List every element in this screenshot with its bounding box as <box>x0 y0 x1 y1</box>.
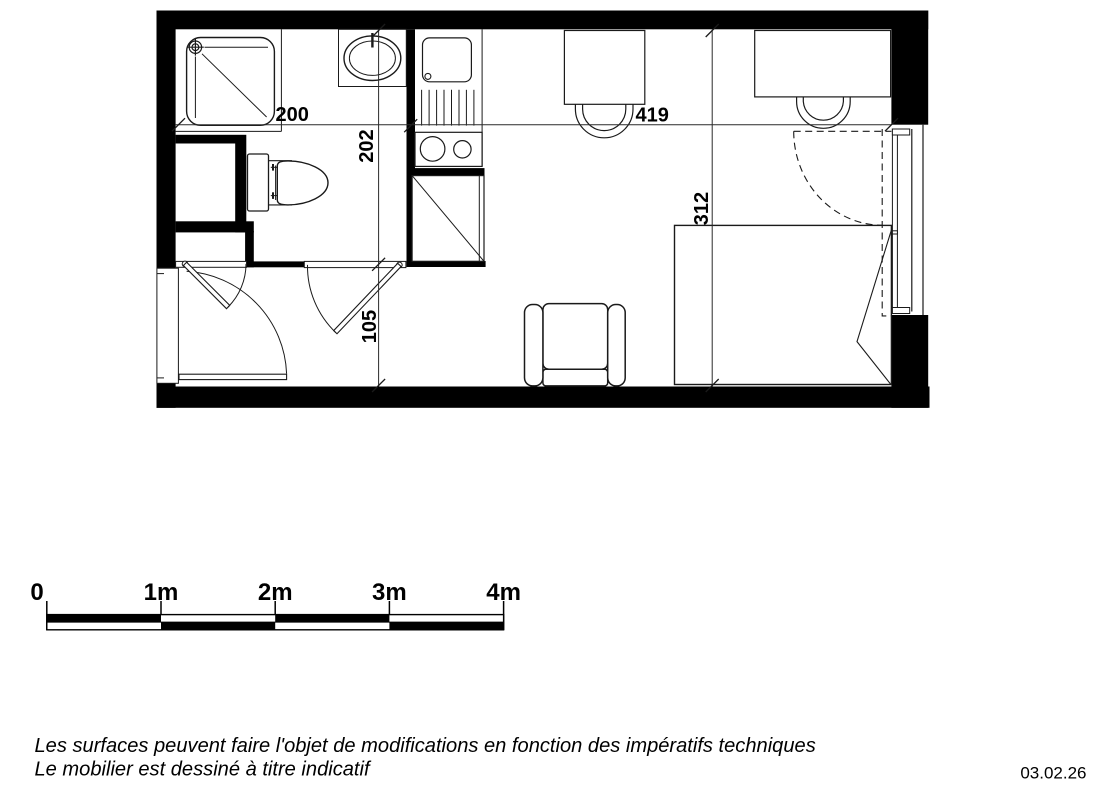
svg-text:4m: 4m <box>486 579 521 606</box>
svg-text:419: 419 <box>636 105 669 127</box>
svg-text:Le mobilier est dessiné à titr: Le mobilier est dessiné à titre indicati… <box>35 759 372 781</box>
svg-text:1m: 1m <box>144 579 179 606</box>
svg-text:3m: 3m <box>372 579 407 606</box>
svg-text:Les surfaces peuvent faire l'o: Les surfaces peuvent faire l'objet de mo… <box>35 735 816 757</box>
svg-text:200: 200 <box>276 104 309 126</box>
svg-text:03.02.26: 03.02.26 <box>1020 764 1086 783</box>
svg-text:202: 202 <box>356 129 378 162</box>
svg-text:105: 105 <box>359 310 381 343</box>
svg-text:312: 312 <box>691 192 713 225</box>
svg-text:0: 0 <box>30 579 43 606</box>
svg-text:2m: 2m <box>258 579 293 606</box>
